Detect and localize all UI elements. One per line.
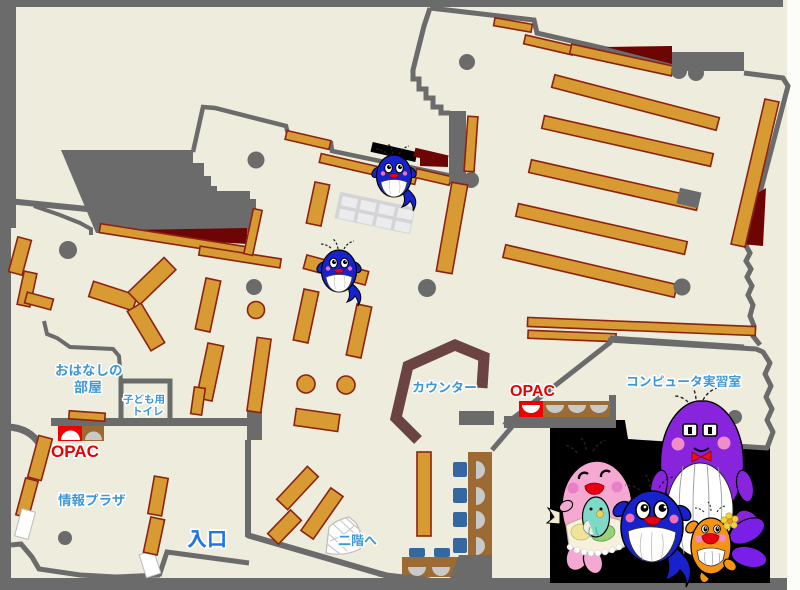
svg-text:OPAC: OPAC: [51, 442, 99, 461]
svg-text:OPAC: OPAC: [510, 383, 555, 400]
